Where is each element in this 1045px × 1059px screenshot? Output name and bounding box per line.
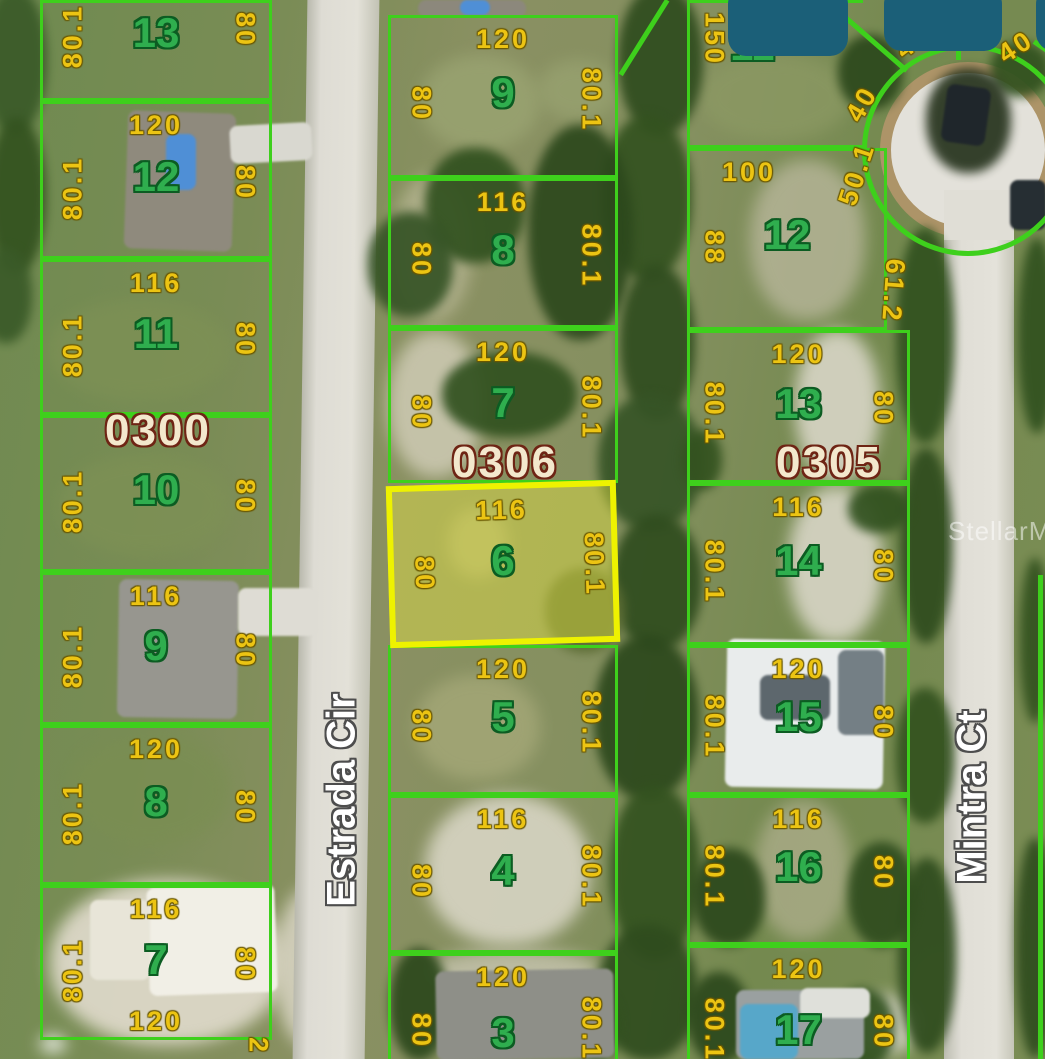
parcel-map: Estrada Cir Mintra Ct 0300 0306 0305 40 … [0, 0, 1045, 1059]
dim-left: 80 [408, 86, 435, 122]
dim-left: 88 [701, 230, 728, 266]
dim-top: 120 [771, 341, 825, 368]
lot-middle-8[interactable]: 1168080.18 [388, 178, 618, 328]
lot-number: 7 [144, 939, 167, 981]
lot-number: 9 [144, 625, 167, 667]
lot-number: 3 [491, 1012, 514, 1054]
dim-left: 80.1 [60, 938, 87, 1003]
lot-number: 6 [491, 540, 516, 583]
lot-number: 13 [133, 12, 180, 54]
dim-right: 80.1 [578, 997, 605, 1059]
dim-right: 80 [870, 1014, 897, 1050]
lot-middle-5[interactable]: 1208080.15 [388, 645, 618, 795]
lot-right-14[interactable]: 11680.18014 [687, 483, 910, 645]
dim-top: 120 [129, 736, 183, 763]
redaction-box [728, 0, 848, 56]
stellar-mls-watermark: StellarMLS [948, 516, 1045, 547]
dim-right: 80 [232, 633, 259, 669]
lot-left-13[interactable]: 80.18013 [40, 0, 272, 101]
redaction-box [884, 0, 1002, 51]
dim-right: 80 [232, 12, 259, 48]
dim-left: 80 [410, 555, 438, 592]
lot-number: 13 [775, 383, 822, 425]
lot-number: 8 [491, 229, 514, 271]
dim-left: 80.1 [701, 540, 728, 605]
lot-left-7[interactable]: 11612080.1807 [40, 885, 272, 1040]
lot-middle-3[interactable]: 1208080.13 [388, 953, 618, 1059]
lot-left-8[interactable]: 12080.1808 [40, 725, 272, 885]
dim-top: 120 [476, 656, 530, 683]
block-label-0300: 0300 [105, 406, 211, 456]
lot-number: 4 [491, 850, 514, 892]
dim-right: 80.1 [578, 67, 605, 132]
lot-number: 7 [491, 382, 514, 424]
lot-middle-9[interactable]: 1208080.19 [388, 15, 618, 178]
block-label-0305: 0305 [776, 438, 882, 488]
dim-right: 80 [232, 322, 259, 358]
dim-right: 80 [232, 165, 259, 201]
dim-left: 80.1 [60, 155, 87, 220]
street-label-mintra-ct: Mintra Ct [950, 710, 995, 883]
dim-left: 80.1 [60, 624, 87, 689]
dim-left: 80.1 [60, 780, 87, 845]
dim-right: 80.1 [578, 845, 605, 910]
dim-top: 120 [129, 112, 183, 139]
dim-top: 120 [476, 964, 530, 991]
lot-middle-4[interactable]: 1168080.14 [388, 795, 618, 953]
dim-left: 80 [408, 864, 435, 900]
lot-number: 14 [775, 540, 822, 582]
dim-left: 80 [408, 1013, 435, 1049]
dim-top: 120 [476, 26, 530, 53]
dim-left: 80 [408, 709, 435, 745]
lot-number: 12 [133, 156, 180, 198]
lot-number: 17 [775, 1009, 822, 1051]
lot-number: 12 [764, 214, 811, 256]
dim-left: 80.1 [701, 845, 728, 910]
lot-number: 8 [144, 781, 167, 823]
dim-left: 80.1 [60, 469, 87, 534]
dim-left: 80 [408, 395, 435, 431]
dim-bottom: 120 [129, 1008, 183, 1035]
dim-top: 116 [130, 896, 183, 923]
dim-61-2: 61.2 [877, 258, 908, 324]
dim-right: 80 [870, 705, 897, 741]
lot-number: 9 [491, 72, 514, 114]
lot-number: 16 [775, 846, 822, 888]
lot-right-16[interactable]: 11680.18016 [687, 795, 910, 945]
tree-blob [1018, 238, 1045, 433]
lot-left-11[interactable]: 11680.18011 [40, 259, 272, 415]
dim-left: 150 [701, 11, 728, 65]
dim-right: 80 [232, 947, 259, 983]
dim-left: 80.1 [701, 998, 728, 1059]
block-label-0306: 0306 [452, 438, 558, 488]
dim-left: 80.1 [60, 312, 87, 377]
lot-left-9[interactable]: 11680.1809 [40, 572, 272, 725]
dim-top: 116 [772, 806, 825, 833]
lot-number: 15 [775, 696, 822, 738]
pool [460, 0, 490, 15]
lot-right-17[interactable]: 12080.18017 [687, 945, 910, 1059]
street-label-estrada-cir: Estrada Cir [320, 693, 365, 906]
lot-right-15[interactable]: 12080.18015 [687, 645, 910, 795]
dim-top: 116 [130, 270, 183, 297]
dim-right: 80.1 [578, 224, 605, 289]
dim-right: 80.1 [578, 691, 605, 756]
dim-2: 2 [245, 1037, 272, 1055]
dim-right: 80.1 [578, 376, 605, 441]
dim-right: 80 [870, 391, 897, 427]
lot-number: 5 [491, 696, 514, 738]
dim-top: 120 [771, 656, 825, 683]
dim-top: 120 [771, 956, 825, 983]
boundary-line [1038, 575, 1043, 1059]
dim-top: 116 [477, 806, 530, 833]
dim-top: 120 [476, 339, 530, 366]
lot-number: 10 [133, 469, 180, 511]
dim-top: 116 [477, 189, 530, 216]
dim-right: 80 [870, 855, 897, 891]
dim-left: 80.1 [701, 382, 728, 447]
lot-number: 11 [134, 313, 178, 355]
dim-top: 100 [722, 159, 776, 186]
dim-right: 80 [232, 790, 259, 826]
dim-top: 116 [475, 496, 528, 524]
dim-right: 80 [232, 478, 259, 514]
dim-right: 80.1 [580, 532, 609, 597]
dim-top: 116 [772, 494, 825, 521]
dim-top: 116 [130, 583, 183, 610]
lot-left-12[interactable]: 12080.18012 [40, 101, 272, 259]
lot-middle-6[interactable]: 1168080.16 [386, 480, 620, 648]
dim-left: 80.1 [60, 4, 87, 69]
dim-right: 80 [870, 549, 897, 585]
dim-left: 80 [408, 242, 435, 278]
dim-left: 80.1 [701, 695, 728, 760]
